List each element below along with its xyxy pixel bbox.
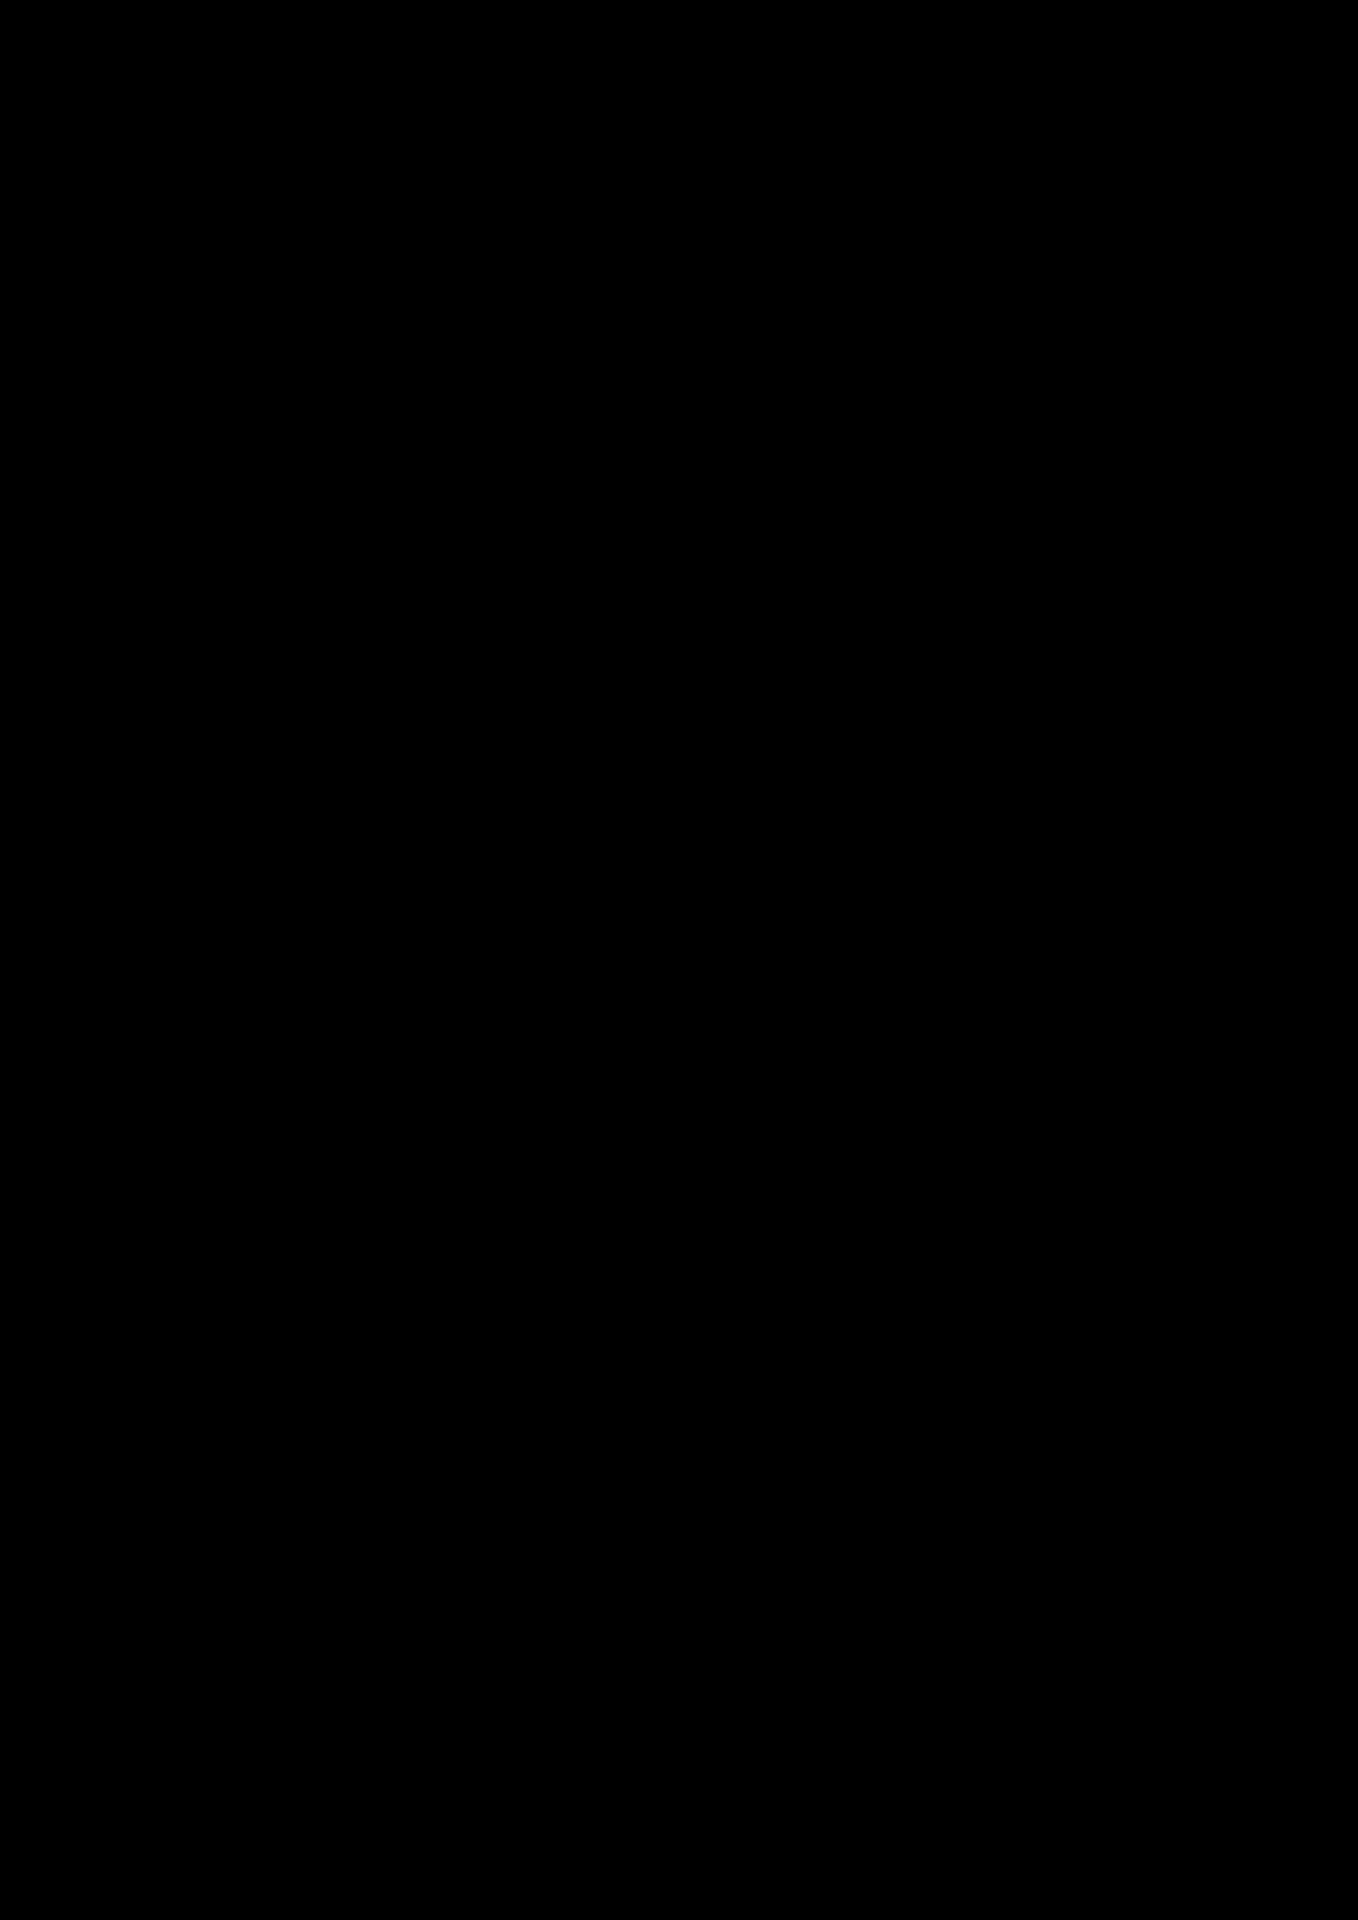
floorplan-stage bbox=[0, 0, 1358, 1920]
floorplan-3d-render bbox=[0, 0, 1358, 1920]
